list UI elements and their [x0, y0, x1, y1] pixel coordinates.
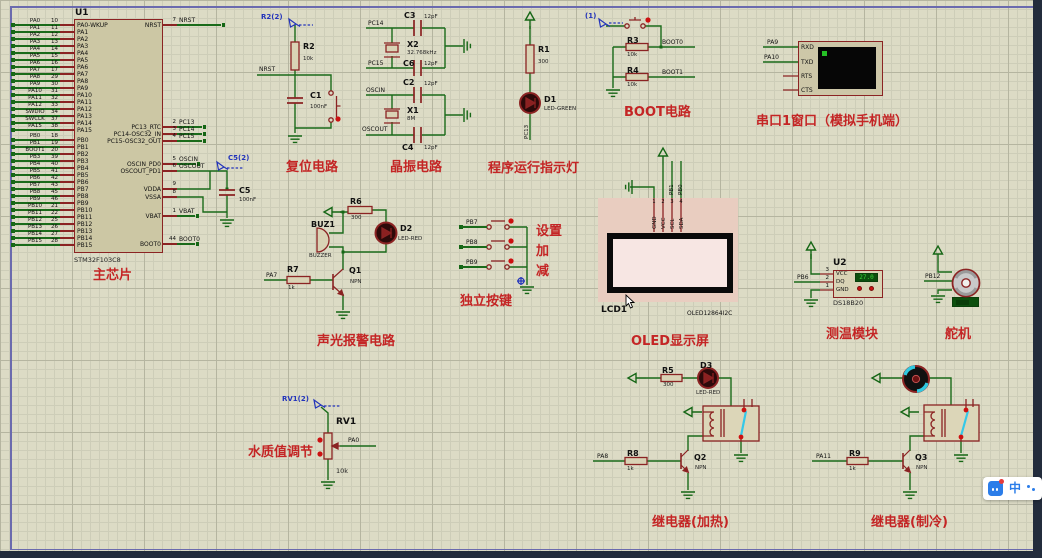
- pin-stub: [60, 216, 74, 217]
- pin-number: 11: [45, 25, 58, 31]
- pin-stub: [60, 115, 74, 116]
- q1-ref: Q1: [349, 266, 361, 275]
- pin-stub: [60, 52, 74, 53]
- c5-ref: C5: [239, 186, 250, 195]
- boot0-net: BOOT0: [662, 39, 683, 46]
- r8-ref: R8: [627, 449, 639, 458]
- pc15-net: PC15: [368, 60, 383, 67]
- pin-number: 33: [45, 102, 58, 108]
- keys-title: 独立按键: [460, 290, 512, 309]
- alarm-title: 声光报警电路: [317, 330, 395, 349]
- pin-number: 10: [45, 18, 58, 24]
- relay-heat-title: 继电器(加热): [652, 511, 729, 530]
- c4-val: 12pF: [424, 145, 438, 151]
- pin-name: PC13_RTC: [95, 124, 161, 131]
- serial-title: 串口1窗口（模拟手机端）: [756, 110, 908, 129]
- nrst-net-label: NRST: [259, 66, 275, 73]
- pin-number: 2: [820, 275, 829, 281]
- terminal-pin-rxd: RXD: [801, 44, 814, 51]
- pin-number: 29: [45, 74, 58, 80]
- terminal-pin-cts: CTS: [801, 87, 813, 94]
- rv1-probe-label: RV1(2): [282, 395, 309, 403]
- pin-stub: [60, 167, 74, 168]
- pin-name: PA9: [77, 85, 88, 92]
- pin-stub: [60, 209, 74, 210]
- pin-number: 2: [163, 119, 176, 125]
- pin-name: PA14: [77, 120, 92, 127]
- q3-val: NPN: [916, 465, 928, 471]
- key-function-label: 加: [536, 240, 549, 259]
- d3-val: LED-RED: [696, 390, 720, 396]
- chip-caption: 主芯片: [93, 264, 132, 283]
- pin-name: PA2: [77, 36, 88, 43]
- oled-part: OLED12864I2C: [687, 310, 732, 317]
- pin-number: 9: [163, 181, 176, 187]
- d3-ref: D3: [700, 361, 712, 370]
- pin-name: PA1: [77, 29, 88, 36]
- pa8-net: PA8: [597, 453, 608, 460]
- c5-probe-label: C5(2): [228, 154, 249, 162]
- net-label: PC15: [179, 133, 194, 140]
- pin-number: 26: [45, 224, 58, 230]
- net-label: OSCIN: [179, 156, 198, 163]
- buz1-val: BUZZER: [309, 253, 332, 259]
- pin-name: PA5: [77, 57, 88, 64]
- pin-name: OSCIN_PD0: [95, 161, 161, 168]
- wire: [461, 266, 487, 267]
- pin-stub: [60, 195, 74, 196]
- temp-part: DS18B20: [833, 299, 863, 307]
- pb0-vertical-net: PB0: [678, 184, 684, 195]
- pin-stub: [60, 174, 74, 175]
- r3-ref: R3: [627, 36, 639, 45]
- pin-number: 25: [45, 217, 58, 223]
- c4-ref: C4: [402, 143, 413, 152]
- pin-stub: [60, 45, 74, 46]
- pin-name: PB15: [77, 242, 92, 249]
- pin-name: PB13: [77, 228, 92, 235]
- r3-val: 10k: [627, 52, 637, 58]
- c2-val: 12pF: [424, 81, 438, 87]
- terminal-pin-txd: TXD: [801, 59, 813, 66]
- pin-name: PB10: [77, 207, 92, 214]
- d2-val: LED-RED: [398, 236, 422, 242]
- pin-number: 2: [660, 199, 667, 205]
- net-label: VBAT: [179, 208, 195, 215]
- pc14-net: PC14: [368, 20, 383, 27]
- pin-name: SCL: [670, 219, 676, 229]
- terminal: [196, 214, 200, 218]
- pin-stub: [60, 223, 74, 224]
- pin-number: 14: [45, 46, 58, 52]
- pin-name: GND: [652, 216, 658, 229]
- pin-name: PB11: [77, 214, 92, 221]
- pin-stub: [60, 24, 74, 25]
- boot1-net: BOOT1: [662, 69, 683, 76]
- terminal: [203, 139, 207, 143]
- pin-name: PB8: [77, 193, 89, 200]
- c1-val: 100nF: [310, 104, 327, 110]
- terminal: [203, 132, 207, 136]
- pin-name: PC14-OSC32_IN: [95, 131, 161, 138]
- pin-stub: [60, 94, 74, 95]
- x1-ref: X1: [407, 106, 419, 115]
- pin-number: 19: [45, 140, 58, 146]
- pin-number: 17: [45, 67, 58, 73]
- net-label: PB7: [466, 219, 478, 226]
- wire: [177, 24, 221, 25]
- pin-stub: [60, 108, 74, 109]
- pin-number: 44: [163, 236, 176, 242]
- buz1-ref: BUZ1: [311, 220, 335, 229]
- temp-title: 测温模块: [826, 323, 878, 342]
- r7-val: 1k: [288, 285, 295, 291]
- r9-ref: R9: [849, 449, 861, 458]
- oscin-net: OSCIN: [366, 87, 385, 94]
- pin-stub: [60, 73, 74, 74]
- ime-icon-dot1: [992, 488, 995, 491]
- pin-name: PB1: [77, 144, 89, 151]
- ime-badge: [999, 479, 1004, 484]
- schematic-canvas[interactable]: 27.0: [0, 0, 1042, 558]
- pb12-net: PB12: [925, 273, 940, 280]
- pin-name: PA13: [77, 113, 92, 120]
- pin-stub: [163, 215, 177, 216]
- pin-number: 39: [45, 154, 58, 160]
- r2-ref: R2: [303, 42, 315, 51]
- pin-stub: [60, 59, 74, 60]
- net-label: PC14: [179, 126, 194, 133]
- pin-stub: [163, 243, 177, 244]
- pin-number: 16: [45, 60, 58, 66]
- pin-stub: [60, 146, 74, 147]
- key-function-label: 设置: [536, 220, 562, 239]
- terminal: [222, 23, 226, 27]
- pin-stub: [60, 244, 74, 245]
- pin-stub: [60, 122, 74, 123]
- reset-probe-label: R2(2): [261, 13, 283, 21]
- pin-stub: [60, 38, 74, 39]
- wire: [177, 215, 195, 216]
- r5-val: 300: [663, 382, 674, 388]
- wire: [177, 140, 202, 141]
- ime-icon-dot2: [996, 488, 999, 491]
- pin-name: PB3: [77, 158, 89, 165]
- boot-title: BOOT电路: [624, 101, 691, 120]
- c6-val: 12pF: [424, 61, 438, 67]
- servo-title: 舵机: [945, 323, 971, 342]
- crystal-title: 晶振电路: [390, 156, 442, 175]
- r6-ref: R6: [350, 197, 362, 206]
- r9-val: 1k: [849, 466, 856, 472]
- u2-ref: U2: [833, 258, 847, 268]
- chip-ref: U1: [75, 8, 89, 18]
- pa11-net: PA11: [816, 453, 831, 460]
- x2-ref: X2: [407, 40, 419, 49]
- relay-cool-title: 继电器(制冷): [871, 511, 948, 530]
- pin-stub: [60, 181, 74, 182]
- c3-val: 12pF: [424, 14, 438, 20]
- pin-number: 1: [651, 199, 658, 205]
- pin-number: 18: [45, 133, 58, 139]
- pin-stub: [163, 140, 177, 141]
- pin-number: 21: [45, 203, 58, 209]
- d2-ref: D2: [400, 224, 412, 233]
- pin-name: NRST: [95, 22, 161, 29]
- pin-number: 30: [45, 81, 58, 87]
- pin-stub: [60, 230, 74, 231]
- wire: [13, 244, 60, 245]
- x2-val: 32.768kHz: [407, 50, 436, 56]
- rv1-val: 10k: [336, 467, 348, 475]
- pin-name: SDA: [679, 218, 685, 229]
- pin-name: BOOT0: [95, 241, 161, 248]
- pin-name: PA12: [77, 106, 92, 113]
- r5-ref: R5: [662, 366, 674, 375]
- pa7-net: PA7: [266, 272, 277, 279]
- pin-name: PB12: [77, 221, 92, 228]
- pin-name: OSCOUT_PD1: [95, 168, 161, 175]
- pin-number: 3: [163, 126, 176, 132]
- pin-name: DQ: [836, 279, 845, 285]
- pin-stub: [163, 196, 177, 197]
- pin-number: 8: [163, 189, 176, 195]
- pin-number: 27: [45, 231, 58, 237]
- boot-probe-label: (1): [585, 12, 596, 20]
- r1-ref: R1: [538, 45, 550, 54]
- pin-stub: [60, 202, 74, 203]
- oscout-net: OSCOUT: [362, 126, 388, 133]
- pin-name: PB4: [77, 165, 89, 172]
- pin-number: 4: [678, 199, 685, 205]
- c5-val: 100nF: [239, 197, 256, 203]
- d1-val: LED-GREEN: [544, 106, 576, 112]
- pin-number: 3: [669, 199, 676, 205]
- q2-val: NPN: [695, 465, 707, 471]
- pin-stub: [60, 160, 74, 161]
- pin-name: PA4: [77, 50, 88, 57]
- pin-number: 45: [45, 189, 58, 195]
- pin-stub: [60, 237, 74, 238]
- pin-stub: [163, 170, 177, 171]
- r4-val: 10k: [627, 82, 637, 88]
- d1-ref: D1: [544, 95, 556, 104]
- wire: [461, 246, 487, 247]
- net-label: NRST: [179, 17, 195, 24]
- pin-name: PC15-OSC32_OUT: [95, 138, 161, 145]
- pin-number: 42: [45, 175, 58, 181]
- pin-number: 15: [45, 53, 58, 59]
- wire: [13, 129, 60, 130]
- q3-ref: Q3: [915, 453, 927, 462]
- pin-stub: [60, 153, 74, 154]
- net-label: OSCOUT: [179, 163, 205, 170]
- r8-val: 1k: [627, 466, 634, 472]
- pin-name: PA15: [77, 127, 92, 134]
- water-title: 水质值调节: [248, 441, 313, 460]
- pin-name: PB0: [77, 137, 89, 144]
- pin-stub: [60, 80, 74, 81]
- pin-number: 38: [45, 123, 58, 129]
- indicator-title: 程序运行指示灯: [488, 157, 579, 176]
- net-label: PC13: [179, 119, 194, 126]
- pin-number: 40: [45, 161, 58, 167]
- pin-number: 20: [45, 147, 58, 153]
- pin-number: 28: [45, 238, 58, 244]
- terminal-pin-rts: RTS: [801, 73, 812, 80]
- pin-name: VDDA: [95, 186, 161, 193]
- net-label: PB9: [466, 259, 478, 266]
- pin-number: 34: [45, 109, 58, 115]
- pin-name: VSSA: [95, 194, 161, 201]
- pin-name: PA7: [77, 71, 88, 78]
- pin-name: PA8: [77, 78, 88, 85]
- pin-name: PB14: [77, 235, 92, 242]
- pin-stub: [60, 87, 74, 88]
- x1-val: 8M: [407, 116, 415, 122]
- pin-number: 37: [45, 116, 58, 122]
- pin-number: 1: [163, 208, 176, 214]
- net-label: BOOT0: [179, 236, 200, 243]
- pa9-net: PA9: [767, 39, 778, 46]
- pin-name: PB7: [77, 186, 89, 193]
- pc13-vertical-net: PC13: [524, 125, 530, 139]
- pa10-net: PA10: [764, 54, 779, 61]
- pin-name: PB2: [77, 151, 89, 158]
- pin-name: PA6: [77, 64, 88, 71]
- r4-ref: R4: [627, 66, 639, 75]
- pb1-vertical-net: PB1: [669, 184, 675, 195]
- pin-number: 31: [45, 88, 58, 94]
- pin-number: 41: [45, 168, 58, 174]
- pin-number: 4: [163, 133, 176, 139]
- pin-name: GND: [836, 287, 849, 293]
- ime-more-icon[interactable]: [1027, 485, 1030, 488]
- pin-stub: [60, 101, 74, 102]
- r6-val: 300: [351, 215, 362, 221]
- rv1-ref: RV1: [336, 417, 356, 427]
- q1-val: NPN: [350, 279, 362, 285]
- q2-ref: Q2: [694, 453, 706, 462]
- pa0-net: PA0: [348, 437, 359, 444]
- r7-ref: R7: [287, 265, 299, 274]
- ime-lang-toggle[interactable]: 中: [1009, 481, 1021, 496]
- pin-number: 46: [45, 196, 58, 202]
- pin-number: 12: [45, 32, 58, 38]
- pin-number: 3: [820, 267, 829, 273]
- wire: [461, 226, 487, 227]
- key-function-label: 减: [536, 260, 549, 279]
- reset-title: 复位电路: [286, 156, 338, 175]
- pin-number: 5: [163, 156, 176, 162]
- c2-ref: C2: [403, 78, 414, 87]
- net-label: PB8: [466, 239, 478, 246]
- pb6-net: PB6: [797, 274, 809, 281]
- pin-name: PB6: [77, 179, 89, 186]
- pin-name: VCC: [661, 218, 667, 229]
- r1-val: 300: [538, 59, 549, 65]
- lcd1-ref: LCD1: [601, 305, 627, 315]
- ime-toolbar[interactable]: 中: [983, 477, 1042, 500]
- r2-val: 10k: [303, 56, 313, 62]
- pin-number: 7: [163, 17, 176, 23]
- pin-name: PB9: [77, 200, 89, 207]
- pin-name: PA10: [77, 92, 92, 99]
- pin-stub: [60, 188, 74, 189]
- c1-ref: C1: [310, 91, 321, 100]
- pin-name: VCC: [836, 271, 847, 277]
- c6-ref: C6: [403, 59, 414, 68]
- pin-number: 13: [45, 39, 58, 45]
- pin-stub: [60, 139, 74, 140]
- c3-ref: C3: [404, 11, 415, 20]
- pin-number: 32: [45, 95, 58, 101]
- terminal: [203, 125, 207, 129]
- oled-title: OLED显示屏: [631, 330, 709, 349]
- pin-name: PB5: [77, 172, 89, 179]
- pin-number: 6: [163, 163, 176, 169]
- wire: [177, 243, 195, 244]
- pin-stub: [60, 31, 74, 32]
- pin-number: 22: [45, 210, 58, 216]
- pin-name: PA11: [77, 99, 92, 106]
- pin-stub: [60, 66, 74, 67]
- pin-stub: [163, 24, 177, 25]
- pin-stub: [60, 129, 74, 130]
- pin-number: 43: [45, 182, 58, 188]
- pin-number: 1: [820, 283, 829, 289]
- pin-name: VBAT: [95, 213, 161, 220]
- chip-part: STM32F103C8: [74, 256, 121, 264]
- pin-name: PA3: [77, 43, 88, 50]
